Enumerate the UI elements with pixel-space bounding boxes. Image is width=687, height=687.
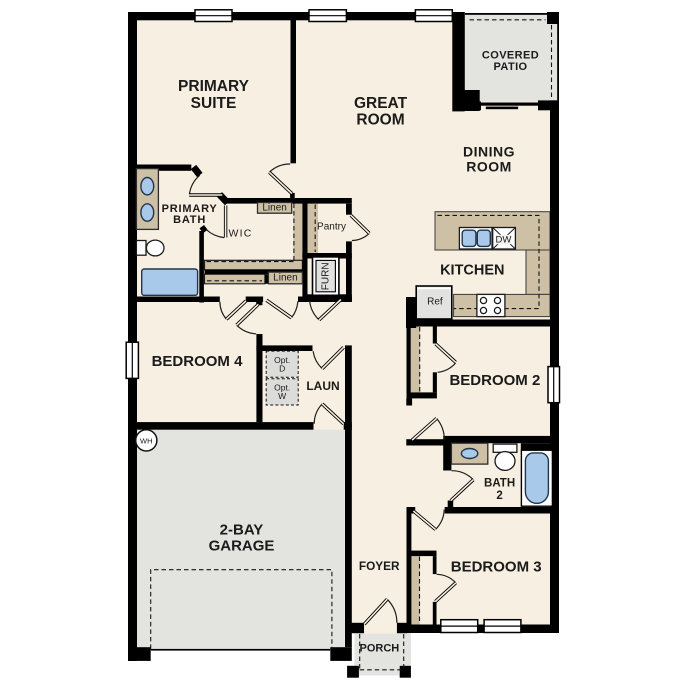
svg-text:FOYER: FOYER xyxy=(359,559,400,573)
svg-text:Linen: Linen xyxy=(273,273,297,284)
svg-text:2: 2 xyxy=(496,490,502,502)
svg-text:Linen: Linen xyxy=(262,203,286,214)
svg-text:Ref: Ref xyxy=(427,296,443,307)
svg-text:WIC: WIC xyxy=(228,227,252,239)
svg-text:D: D xyxy=(279,363,285,373)
svg-text:KITCHEN: KITCHEN xyxy=(440,263,504,279)
svg-text:PATIO: PATIO xyxy=(494,61,528,73)
svg-text:BATH: BATH xyxy=(173,214,206,226)
svg-text:BATH: BATH xyxy=(484,477,515,489)
svg-text:WH: WH xyxy=(140,436,153,445)
svg-text:GREAT: GREAT xyxy=(354,95,408,112)
svg-text:PORCH: PORCH xyxy=(360,642,400,654)
svg-text:DW: DW xyxy=(495,234,511,245)
svg-text:2-BAY: 2-BAY xyxy=(220,522,264,539)
svg-text:BEDROOM 3: BEDROOM 3 xyxy=(451,558,542,575)
svg-text:ROOM: ROOM xyxy=(466,158,512,174)
svg-text:PRIMARY: PRIMARY xyxy=(178,78,250,95)
svg-text:FURN: FURN xyxy=(320,262,331,290)
svg-text:GARAGE: GARAGE xyxy=(209,538,275,555)
svg-text:Pantry: Pantry xyxy=(317,222,346,233)
svg-text:COVERED: COVERED xyxy=(482,49,539,61)
svg-text:BEDROOM 4: BEDROOM 4 xyxy=(152,353,244,370)
svg-text:W: W xyxy=(278,391,286,401)
svg-text:DINING: DINING xyxy=(463,143,515,159)
svg-text:ROOM: ROOM xyxy=(356,112,404,129)
svg-text:BEDROOM 2: BEDROOM 2 xyxy=(449,372,540,389)
svg-text:SUITE: SUITE xyxy=(191,95,237,112)
svg-text:LAUN: LAUN xyxy=(306,379,339,393)
